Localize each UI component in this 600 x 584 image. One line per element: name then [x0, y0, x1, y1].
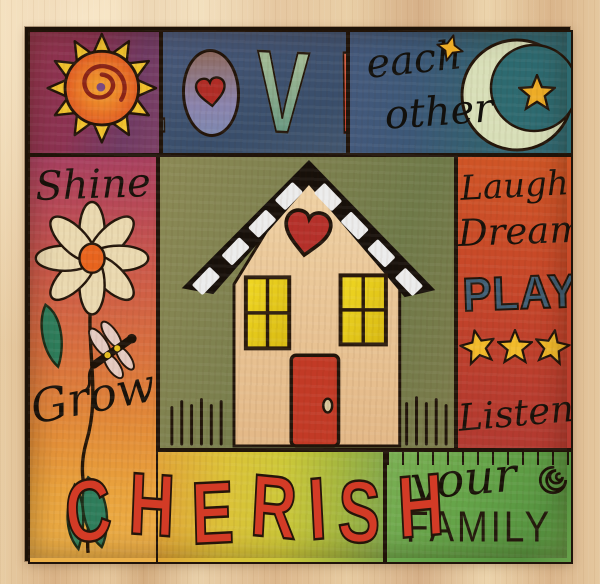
fence-right: [407, 398, 446, 444]
door-knob: [323, 399, 332, 413]
window-right: [341, 275, 386, 344]
listen-text: Listen: [457, 390, 573, 437]
cherish-text: C H E R I S H: [108, 454, 400, 560]
window-left: [246, 277, 289, 348]
love-letter-l: L: [161, 43, 167, 143]
love-letter-o: [180, 48, 241, 138]
each-other-panel: each other: [348, 30, 573, 155]
sun-panel: [28, 30, 161, 155]
leaf-icon: [42, 305, 62, 367]
fence-left: [172, 400, 221, 444]
love-panel: L V E: [161, 30, 348, 155]
dream-text: Dream: [457, 211, 571, 252]
swirl-icon: [535, 462, 571, 498]
cherish-letter: S: [337, 467, 381, 557]
folk-art-plaque-photo: { "top": { "love_word": "LOVE", "love_le…: [0, 0, 600, 584]
play-text: PLAY: [462, 267, 567, 318]
sparkle-star-icon: [436, 34, 464, 62]
cherish-letter: C: [62, 464, 114, 558]
star-icon: [497, 329, 533, 365]
cherish-letter: H: [127, 459, 176, 550]
three-stars: [458, 329, 571, 365]
house-panel: [158, 155, 456, 450]
love-letter-e: E: [338, 43, 348, 143]
love-letter-v: V: [255, 42, 310, 143]
cherish-letter: I: [307, 464, 329, 553]
cherish-letter: E: [190, 468, 234, 558]
laugh-dream-play-panel: Laugh Dream PLAY Listen: [456, 155, 573, 450]
star-icon: [531, 326, 573, 368]
flower-center: [79, 244, 104, 273]
cherish-letter: R: [249, 461, 299, 553]
sun-icon: [30, 32, 161, 153]
heart-icon: [193, 75, 228, 110]
other-text: other: [363, 87, 515, 137]
star-icon: [456, 326, 499, 369]
cherish-letter: H: [395, 460, 445, 552]
house-illustration: [160, 157, 454, 448]
laugh-text: Laugh: [457, 166, 572, 206]
painted-plaque: L V E each other: [25, 27, 570, 561]
shine-text: Shine: [29, 163, 156, 207]
